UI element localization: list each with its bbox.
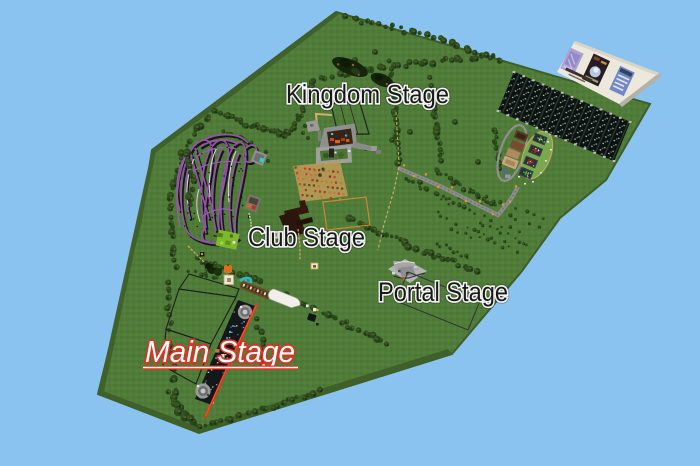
svg-text:Main Stage: Main Stage — [145, 334, 295, 369]
svg-text:Portal Stage: Portal Stage — [378, 277, 508, 307]
svg-text:Club Stage: Club Stage — [248, 222, 365, 252]
svg-text:Kingdom Stage: Kingdom Stage — [286, 79, 449, 109]
